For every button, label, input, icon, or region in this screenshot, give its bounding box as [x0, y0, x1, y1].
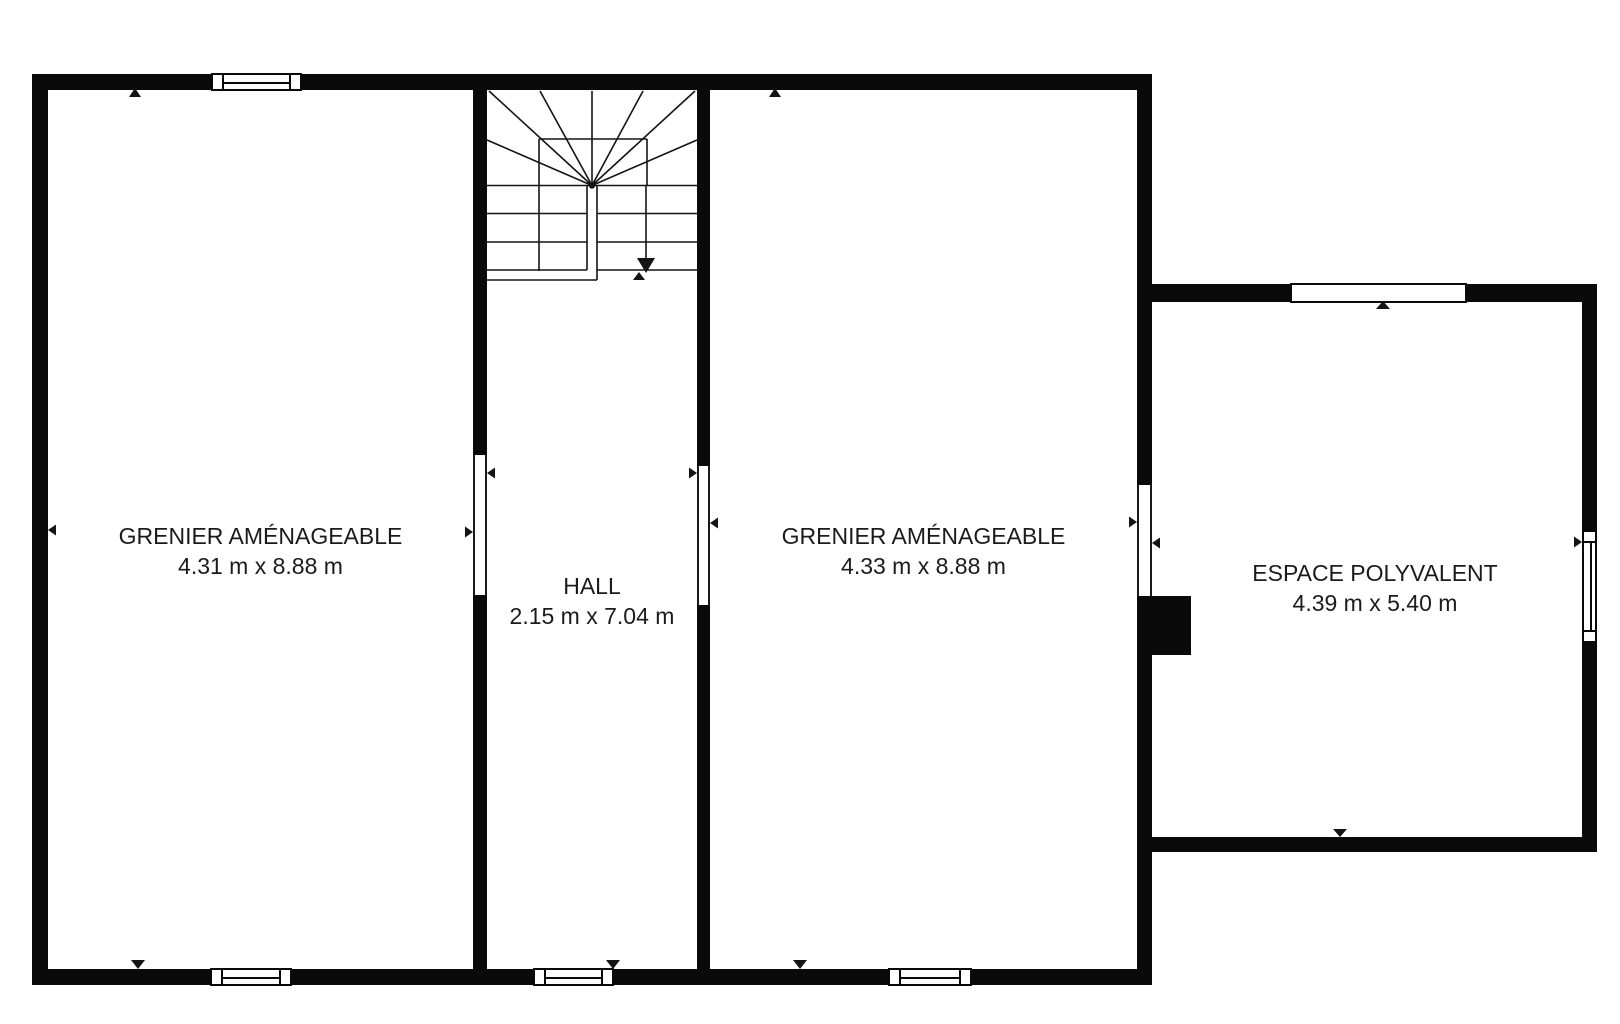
marker-up-icon — [129, 88, 141, 97]
marker-up-icon — [769, 88, 781, 97]
marker-right-icon — [689, 468, 697, 479]
room-dimensions: 2.15 m x 7.04 m — [487, 601, 697, 631]
marker-down-icon — [606, 960, 620, 969]
marker-up-icon — [1376, 301, 1390, 309]
marker-down-icon — [793, 960, 807, 969]
room-name: HALL — [487, 571, 697, 601]
marker-left-icon — [1152, 538, 1160, 549]
marker-down-icon — [131, 960, 145, 969]
room-label-hall: HALL 2.15 m x 7.04 m — [487, 571, 697, 631]
stair-base-marker-icon — [633, 272, 645, 280]
floor-plan: GRENIER AMÉNAGEABLE 4.31 m x 8.88 m HALL… — [0, 0, 1620, 1024]
marker-left-icon — [487, 468, 495, 479]
marker-down-icon — [1333, 829, 1347, 837]
room-name: ESPACE POLYVALENT — [1159, 558, 1591, 588]
room-label-grenier-left: GRENIER AMÉNAGEABLE 4.31 m x 8.88 m — [48, 521, 473, 581]
room-label-grenier-right: GRENIER AMÉNAGEABLE 4.33 m x 8.88 m — [710, 521, 1137, 581]
room-name: GRENIER AMÉNAGEABLE — [48, 521, 473, 551]
room-dimensions: 4.39 m x 5.40 m — [1159, 588, 1591, 618]
room-label-espace-polyvalent: ESPACE POLYVALENT 4.39 m x 5.40 m — [1159, 558, 1591, 618]
room-dimensions: 4.33 m x 8.88 m — [710, 551, 1137, 581]
marker-right-icon — [1574, 537, 1582, 548]
plan-line-overlay — [0, 0, 1620, 1024]
room-dimensions: 4.31 m x 8.88 m — [48, 551, 473, 581]
room-name: GRENIER AMÉNAGEABLE — [710, 521, 1137, 551]
staircase — [487, 91, 697, 280]
